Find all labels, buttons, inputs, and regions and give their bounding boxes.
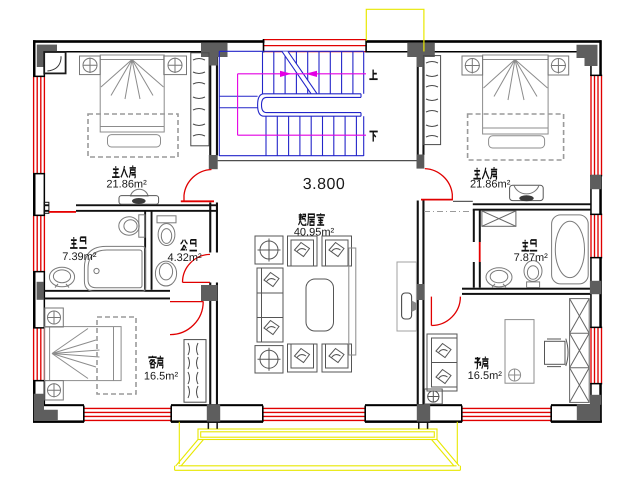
svg-text:4.32m²: 4.32m²	[167, 252, 202, 264]
svg-text:16.5m²: 16.5m²	[468, 370, 503, 382]
svg-text:21.86m²: 21.86m²	[470, 179, 511, 191]
svg-text:16.5m²: 16.5m²	[144, 370, 179, 382]
svg-text:7.39m²: 7.39m²	[62, 251, 97, 263]
svg-text:7.87m²: 7.87m²	[514, 252, 549, 264]
svg-text:21.86m²: 21.86m²	[106, 179, 147, 191]
svg-text:40.95m²: 40.95m²	[294, 227, 335, 239]
svg-text:3.800: 3.800	[303, 176, 346, 193]
